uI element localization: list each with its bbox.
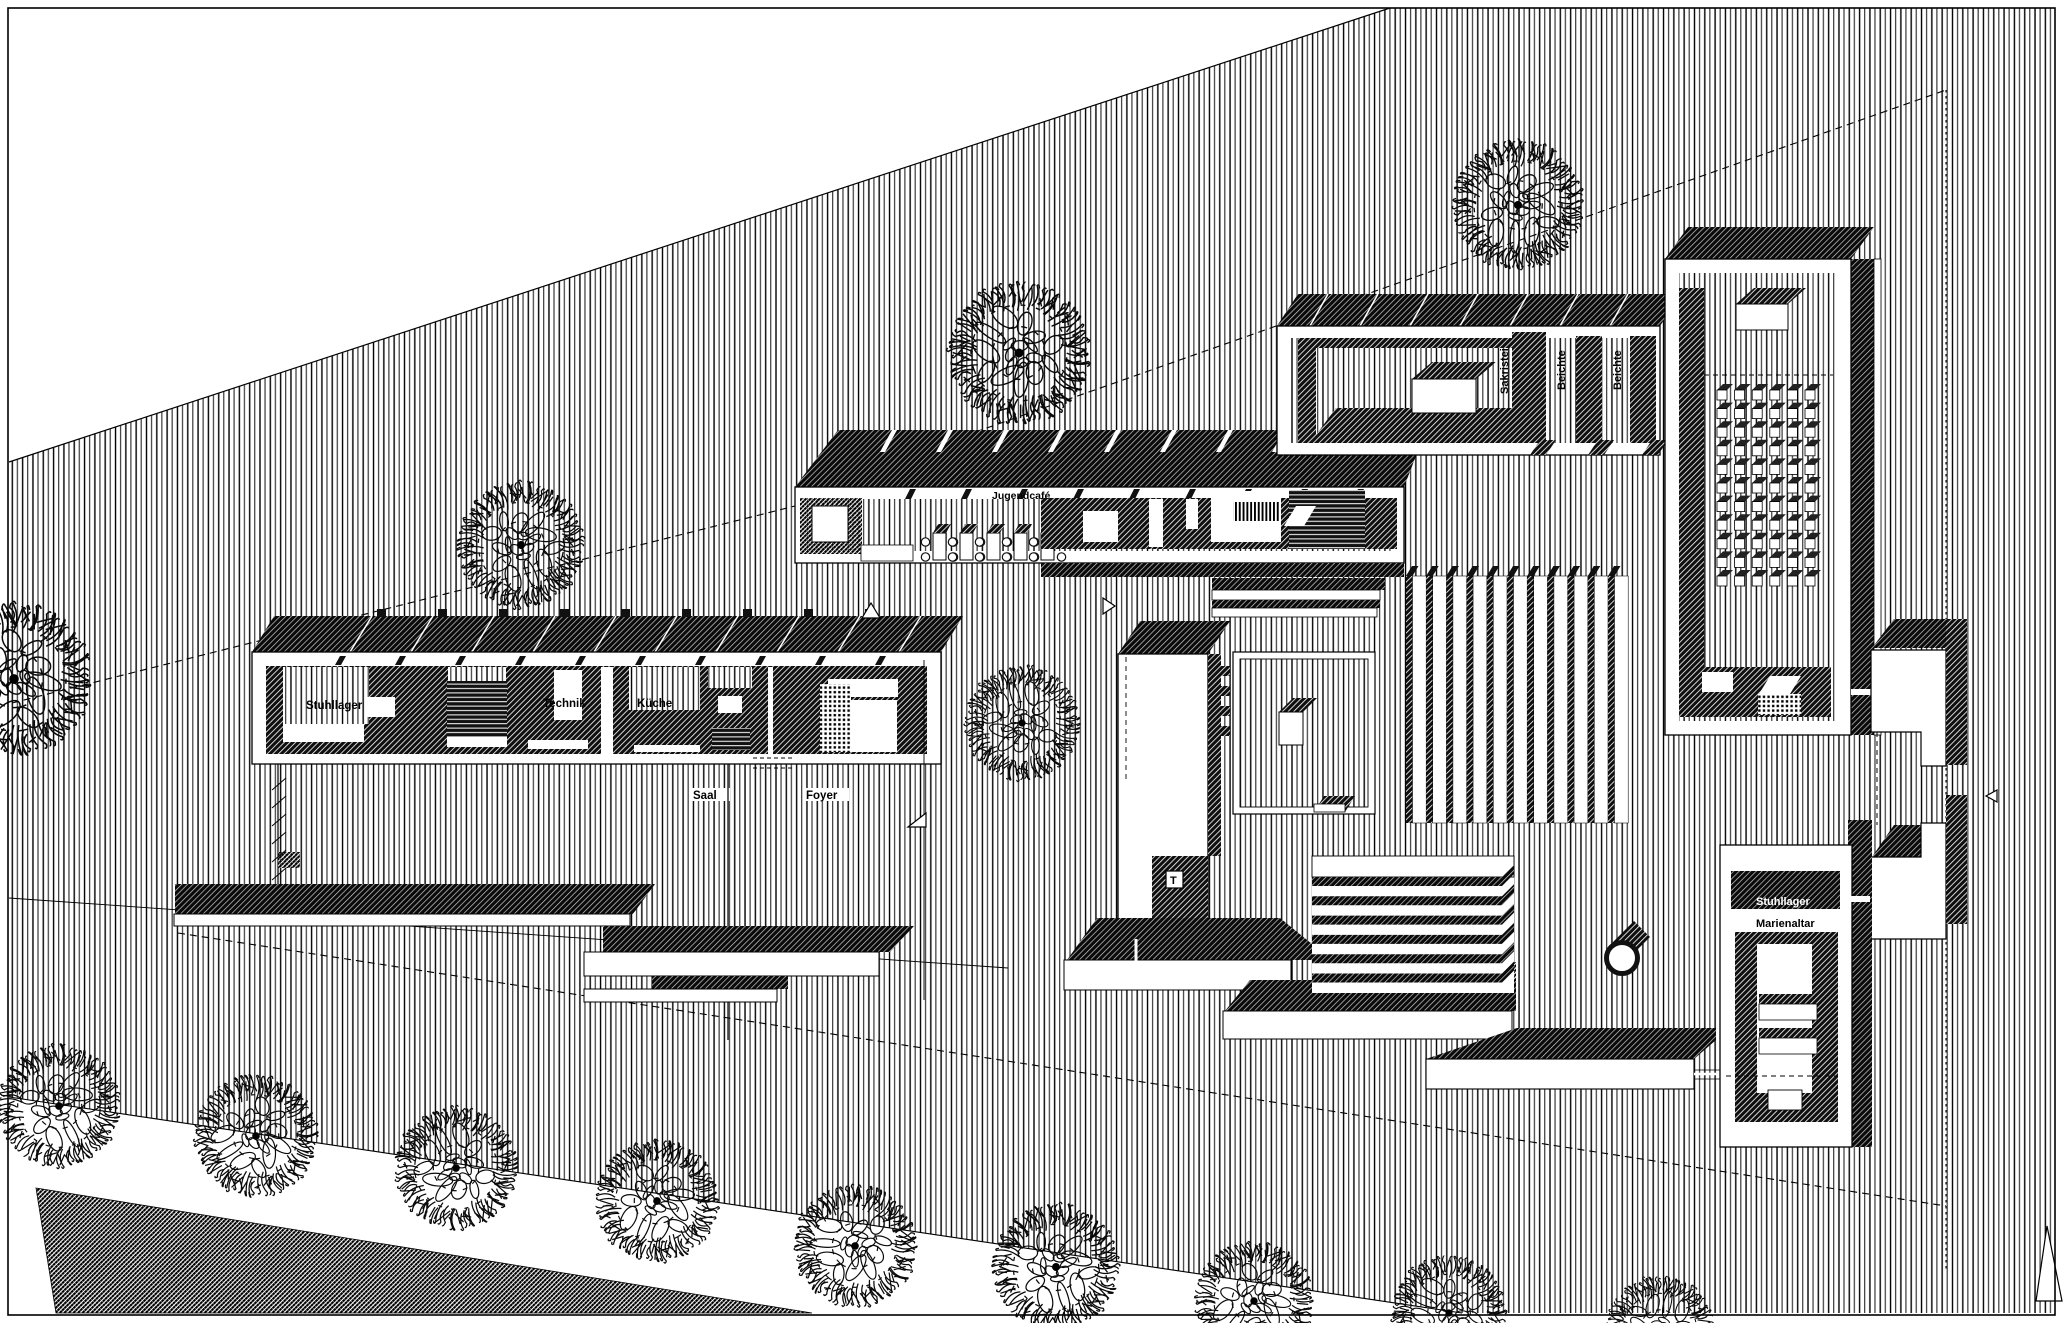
svg-text:Saal: Saal bbox=[693, 790, 717, 802]
svg-text:Sakristei: Sakristei bbox=[1499, 348, 1511, 394]
svg-text:Stuhllager: Stuhllager bbox=[1756, 896, 1811, 908]
svg-text:Beichte: Beichte bbox=[1556, 350, 1568, 390]
svg-text:T: T bbox=[1170, 875, 1177, 887]
svg-text:Marienaltar: Marienaltar bbox=[1756, 918, 1815, 930]
svg-text:Jugendcafé: Jugendcafé bbox=[992, 490, 1051, 502]
svg-text:Technik: Technik bbox=[543, 698, 586, 710]
svg-text:Küche: Küche bbox=[637, 698, 672, 710]
svg-text:Stuhllager: Stuhllager bbox=[306, 700, 363, 712]
svg-text:Beichte: Beichte bbox=[1612, 350, 1624, 390]
svg-text:Foyer: Foyer bbox=[806, 790, 838, 802]
